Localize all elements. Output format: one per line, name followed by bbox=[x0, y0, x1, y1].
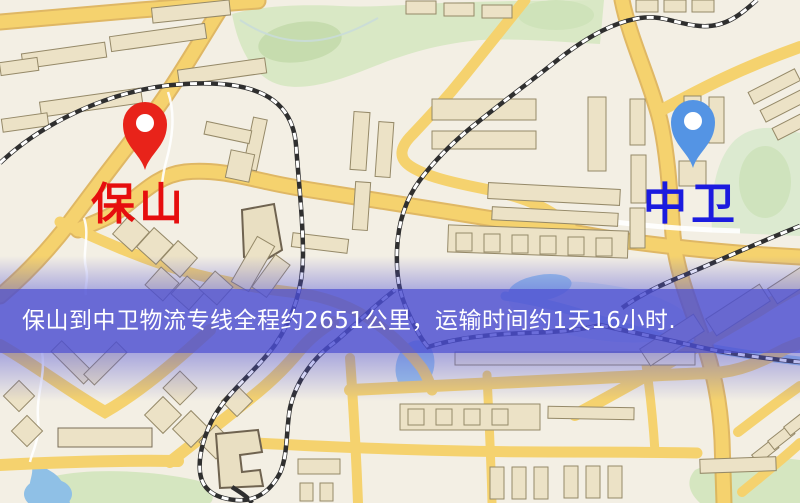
banner-fade-top bbox=[0, 256, 800, 289]
map-screenshot: 中卫 保山 保山到中卫物流专线全程约2651公里，运输时间约1天16小时. bbox=[0, 0, 800, 503]
destination-label: 中卫 bbox=[643, 179, 739, 230]
banner-fade-bottom bbox=[0, 353, 800, 401]
banner-text: 保山到中卫物流专线全程约2651公里，运输时间约1天16小时. bbox=[22, 308, 676, 334]
origin-label: 保山 bbox=[91, 179, 187, 230]
route-info-banner: 保山到中卫物流专线全程约2651公里，运输时间约1天16小时. bbox=[0, 256, 800, 401]
map-canvas: 中卫 保山 保山到中卫物流专线全程约2651公里，运输时间约1天16小时. bbox=[0, 0, 800, 503]
